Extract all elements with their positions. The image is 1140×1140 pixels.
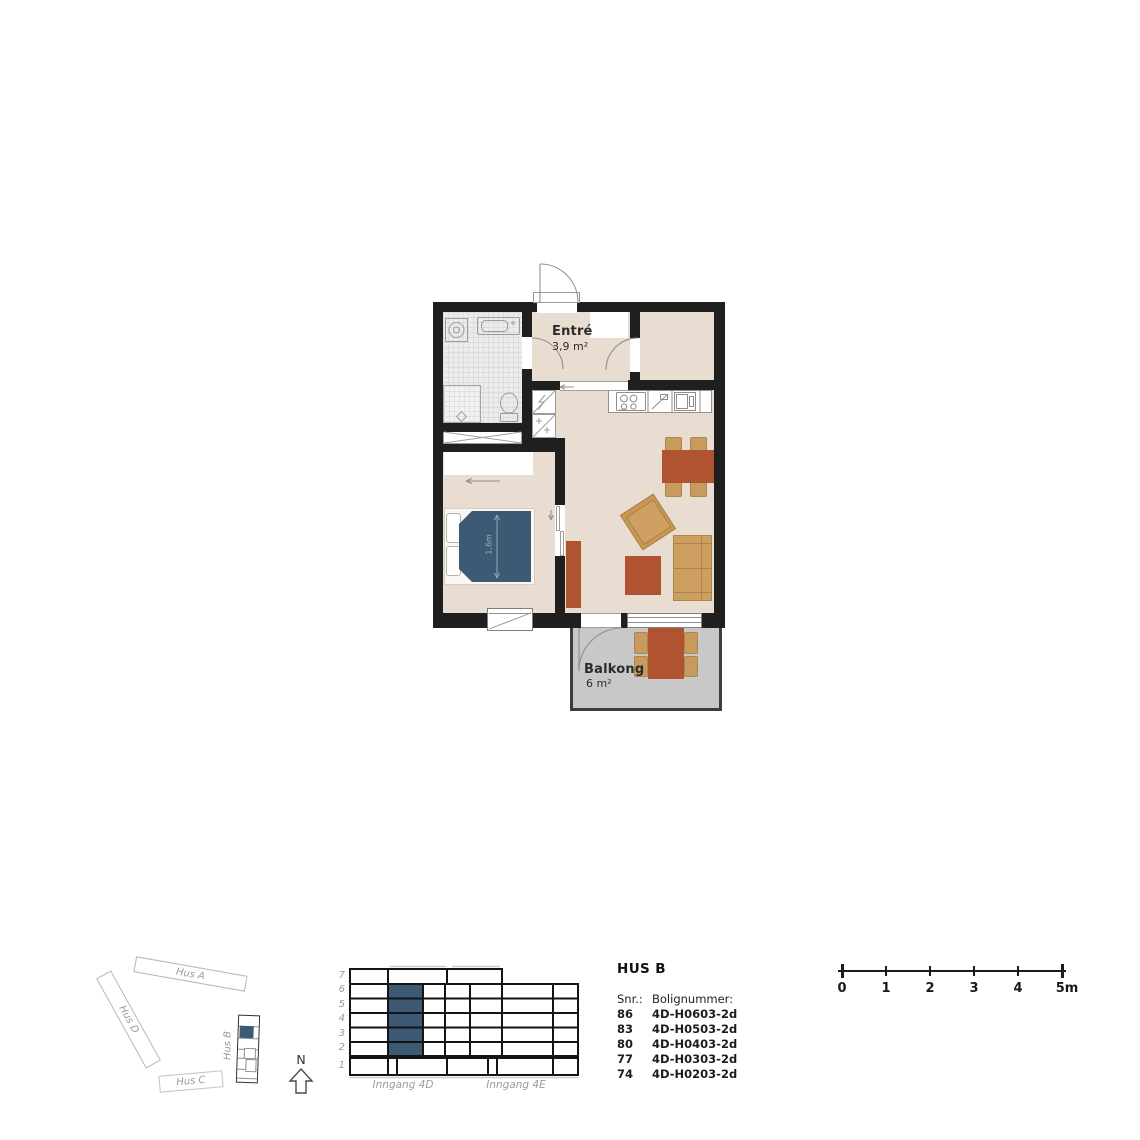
scale-tick-5	[1061, 964, 1064, 978]
room-label-entre: Entré	[552, 325, 593, 339]
toilet-tank	[501, 414, 518, 422]
legend-row-snr-4: 74	[617, 1067, 633, 1081]
scale-label-2: 2	[918, 981, 942, 996]
room-area-balkong: 6 m²	[586, 678, 612, 690]
fridge	[675, 393, 696, 411]
legend-row-snr-2: 80	[617, 1037, 633, 1051]
scale-label-0: 0	[830, 981, 854, 996]
section-floor-1: 1	[331, 1060, 345, 1071]
section-entrance-4d: Inngang 4D	[356, 1080, 450, 1092]
section-floor-4: 4	[331, 1013, 345, 1024]
site-label-hus-b: Hus B	[223, 1026, 234, 1066]
bod-door-arc	[606, 338, 638, 370]
legend-row-bolig-0: 4D-H0603-2d	[652, 1007, 737, 1021]
legend-row-bolig-4: 4D-H0203-2d	[652, 1067, 737, 1081]
scale-label-5m: 5m	[1052, 981, 1082, 996]
legend-row-snr-3: 77	[617, 1052, 633, 1066]
legend-col-bolig: Bolignummer:	[652, 993, 733, 1006]
shower-drain	[457, 412, 467, 422]
legend-row-snr-0: 86	[617, 1007, 633, 1021]
kitchen-appliances	[617, 391, 701, 412]
building-section	[330, 958, 586, 1090]
electrical-bolt	[538, 395, 545, 410]
scale-tick-3	[973, 966, 975, 976]
vent-star-2	[544, 427, 550, 433]
toilet-bowl	[501, 393, 518, 413]
hus-b-unit-detail-2	[245, 1059, 256, 1072]
section-floor-7: 7	[331, 970, 345, 981]
section-floor-2: 2	[331, 1042, 345, 1053]
scale-tick-4	[1017, 966, 1019, 976]
room-area-entre: 3,9 m²	[552, 341, 588, 353]
scale-label-1: 1	[874, 981, 898, 996]
window-lines	[489, 613, 701, 629]
bedroom-door-arrow	[549, 510, 553, 520]
hus-b-unit-detail-1	[244, 1048, 256, 1059]
scale-line	[838, 970, 1066, 972]
scale-tick-0	[841, 964, 844, 978]
legend-row-bolig-3: 4D-H0303-2d	[652, 1052, 737, 1066]
room-label-balkong: Balkong	[584, 663, 644, 677]
hus-b-line-6	[237, 1078, 257, 1080]
entry-door-arc	[540, 264, 578, 302]
scale-tick-2	[929, 966, 931, 976]
bathroom-fixtures	[446, 318, 520, 422]
entre-slide-arrow	[560, 385, 574, 389]
wardrobe-slide-arrow	[466, 479, 500, 484]
tech-closet-symbols	[533, 391, 556, 438]
section-floor-5: 5	[331, 999, 345, 1010]
north-arrow-icon	[286, 1066, 318, 1096]
closet-cross	[444, 432, 521, 443]
scale-label-4: 4	[1006, 981, 1030, 996]
plan-linework	[420, 250, 740, 730]
section-floor-3: 3	[331, 1028, 345, 1039]
north-label: N	[293, 1053, 309, 1067]
legend-col-snr: Snr.:	[617, 993, 643, 1006]
section-highlight-column	[388, 984, 423, 1056]
hus-b-highlight-unit	[239, 1026, 253, 1038]
bed-measure-line	[495, 515, 500, 578]
legend-row-bolig-1: 4D-H0503-2d	[652, 1022, 737, 1036]
scale-label-3: 3	[962, 981, 986, 996]
section-floor-6: 6	[331, 984, 345, 995]
legend-row-snr-1: 83	[617, 1022, 633, 1036]
vent-star-1	[536, 418, 542, 424]
legend-row-bolig-2: 4D-H0403-2d	[652, 1037, 737, 1051]
direction-arrows	[466, 385, 574, 520]
section-entrance-4e: Inngang 4E	[469, 1080, 563, 1092]
scale-bar: 0 1 2 3 4 5m	[830, 955, 1090, 1000]
legend-title: HUS B	[617, 962, 666, 977]
scale-tick-1	[885, 966, 887, 976]
bed-width-label: 1,6m	[486, 524, 495, 564]
site-building-hus-b	[236, 1015, 260, 1084]
washing-machine-drum	[449, 323, 464, 338]
